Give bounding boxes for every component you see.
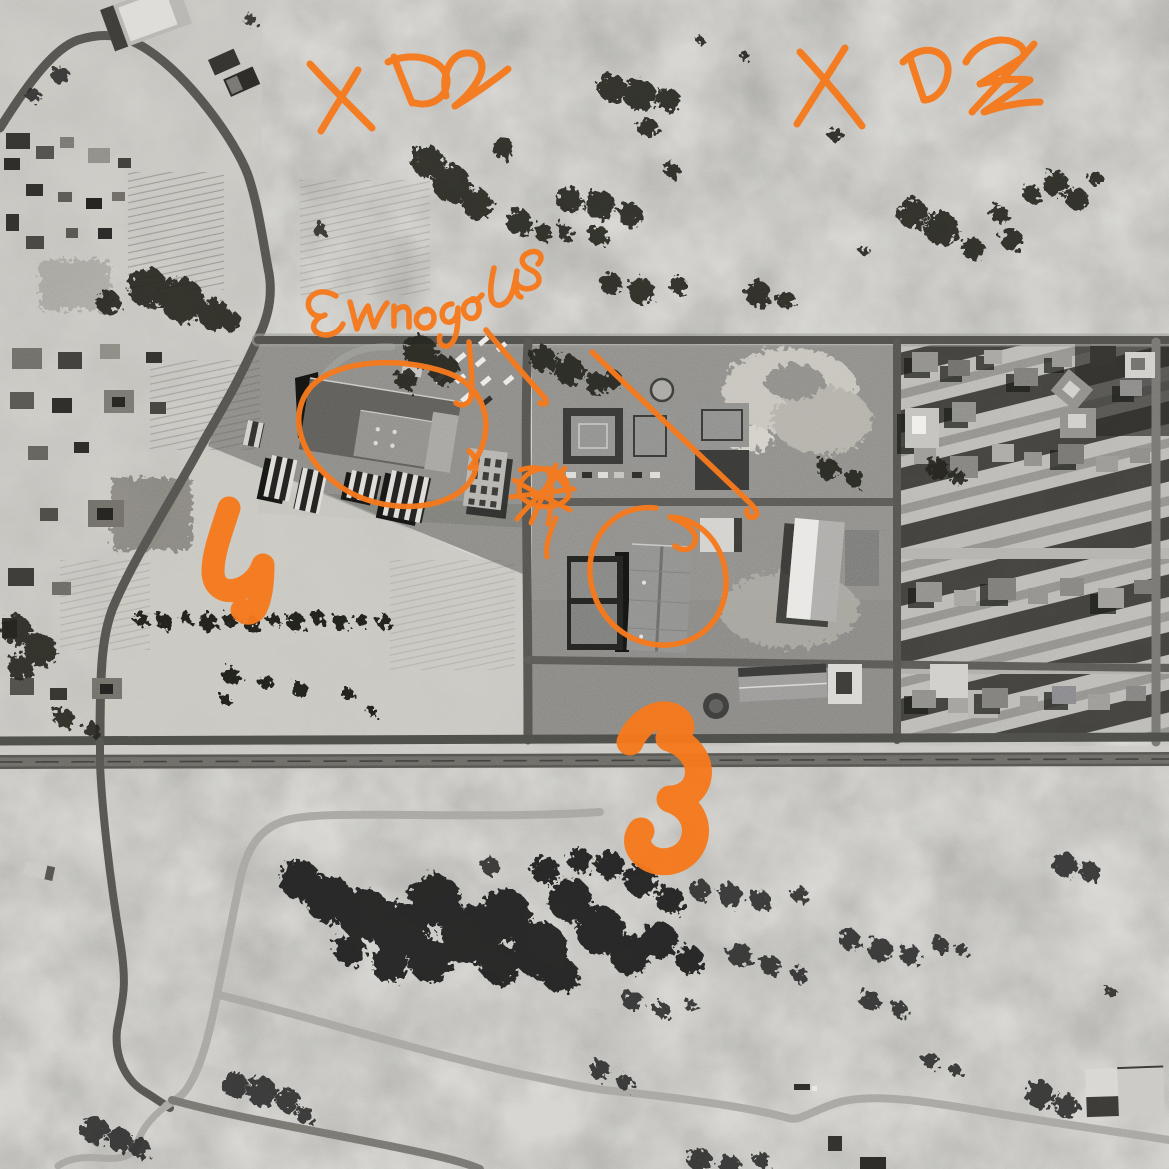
annotated-map-screenshot: XD2 XD2 EwnegoUS leader lines from note … — [0, 0, 1169, 1169]
film-grain-overlay — [0, 0, 1169, 1169]
map-canvas: XD2 XD2 EwnegoUS leader lines from note … — [0, 0, 1169, 1169]
